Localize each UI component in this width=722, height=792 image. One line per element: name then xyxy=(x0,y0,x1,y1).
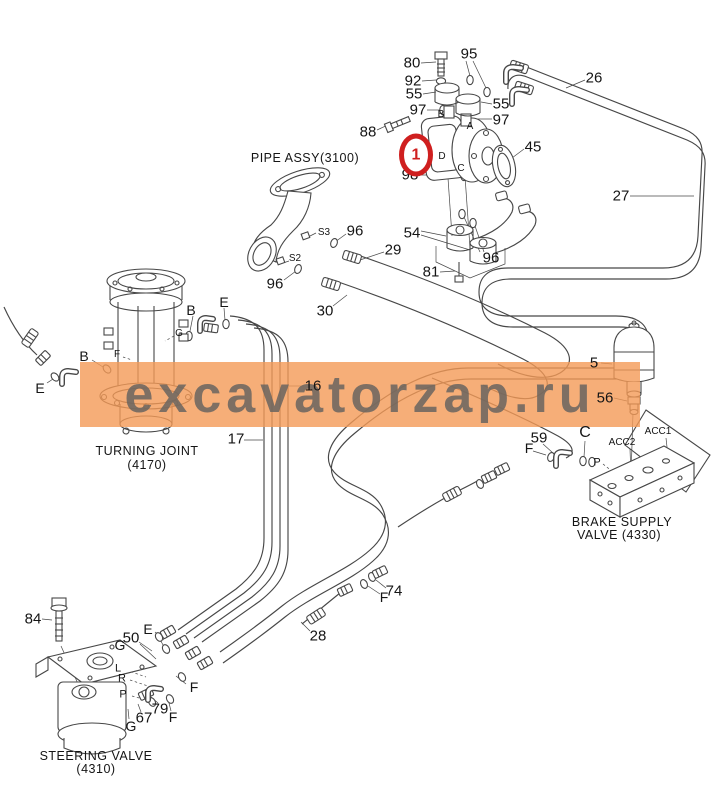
port-label-d-46: D xyxy=(438,152,445,162)
port-label-e-37: E xyxy=(143,622,152,636)
part-label-97-3: 97 xyxy=(410,103,427,118)
part-label-97-6: 97 xyxy=(493,113,510,128)
highlighted-part-number: 1 xyxy=(412,146,421,164)
port-label-p-53: P xyxy=(593,458,600,469)
highlighted-part-balloon[interactable]: 1 xyxy=(399,134,433,177)
component-label-turning-joint-57: TURNING JOINT xyxy=(95,445,198,458)
port-label-b-45: B xyxy=(438,110,445,120)
port-label-r-51: R xyxy=(118,674,126,685)
part-label-96-13: 96 xyxy=(347,224,364,239)
part-label-96-17: 96 xyxy=(483,251,500,266)
port-label-c-47: C xyxy=(457,164,464,174)
part-label-45-10: 45 xyxy=(525,140,542,155)
port-label-b-32: B xyxy=(186,303,195,317)
port-label-a-44: A xyxy=(467,122,474,132)
part-label-29-14: 29 xyxy=(385,243,402,258)
part-label-54-12: 54 xyxy=(404,226,421,241)
port-label-f-35: F xyxy=(525,441,534,455)
part-label-95-4: 95 xyxy=(461,47,478,62)
part-label-27-11: 27 xyxy=(613,189,630,204)
component-label-steering-valve-59: STEERING VALVE xyxy=(40,750,153,763)
port-label-c-34: C xyxy=(579,425,591,441)
component-label--4310--60: (4310) xyxy=(76,763,115,776)
port-label-f-40: F xyxy=(169,710,178,724)
part-label-16-19: 16 xyxy=(305,379,322,394)
part-label-55-2: 55 xyxy=(406,87,423,102)
part-label-80-0: 80 xyxy=(404,56,421,71)
port-label-g-41: G xyxy=(126,719,137,733)
part-label-28-25: 28 xyxy=(310,629,327,644)
port-label-s3-42: S3 xyxy=(318,228,330,238)
port-label-s2-43: S2 xyxy=(289,254,301,264)
port-label-g-48: G xyxy=(175,329,183,339)
port-label-e-31: E xyxy=(35,381,44,395)
parts-diagram-canvas: excavatorzap.ru 809255979555972688984527… xyxy=(0,0,722,792)
part-label-84-26: 84 xyxy=(25,612,42,627)
part-label-26-7: 26 xyxy=(586,71,603,86)
component-label-brake-supply-61: BRAKE SUPPLY xyxy=(572,516,672,529)
port-label-f-36: F xyxy=(380,590,389,604)
port-label-acc2-54: ACC2 xyxy=(609,438,636,448)
part-label-67-29: 67 xyxy=(136,711,153,726)
component-label--4170--58: (4170) xyxy=(127,459,166,472)
port-label-acc1-55: ACC1 xyxy=(645,427,672,437)
component-label-valve-4330--62: VALVE (4330) xyxy=(577,529,661,542)
labels-layer: 8092559795559726889845275496299630968116… xyxy=(0,0,722,792)
part-label-17-20: 17 xyxy=(228,432,245,447)
port-label-b-30: B xyxy=(79,349,88,363)
port-label-f-39: F xyxy=(190,680,199,694)
port-label-p-52: P xyxy=(119,690,126,701)
part-label-88-8: 88 xyxy=(360,125,377,140)
part-label-30-16: 30 xyxy=(317,304,334,319)
port-label-f-49: F xyxy=(114,350,120,360)
port-label-g-38: G xyxy=(115,638,126,652)
part-label-79-28: 79 xyxy=(152,702,169,717)
part-label-5-21: 5 xyxy=(590,356,598,371)
component-label-pipe-assy-3100--56: PIPE ASSY(3100) xyxy=(251,152,359,165)
part-label-55-5: 55 xyxy=(493,97,510,112)
part-label-81-18: 81 xyxy=(423,265,440,280)
part-label-56-22: 56 xyxy=(597,391,614,406)
port-label-e-33: E xyxy=(219,295,228,309)
part-label-96-15: 96 xyxy=(267,277,284,292)
